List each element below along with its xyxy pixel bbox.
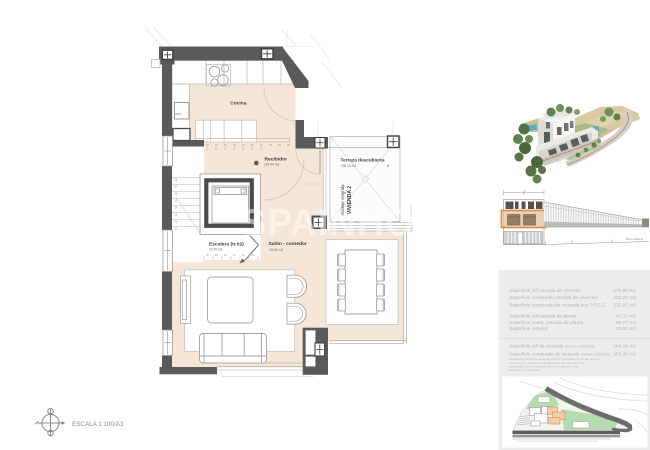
- svg-text:26.80 m2: 26.80 m2: [270, 248, 284, 252]
- svg-text:Superficie útil cerrada de pla: Superficie útil cerrada de planta: [509, 314, 577, 320]
- svg-text:232,23 m2: 232,23 m2: [613, 295, 636, 301]
- svg-text:232,25 m2: 232,25 m2: [613, 302, 636, 308]
- svg-text:(93.94 m2: (93.94 m2: [265, 163, 280, 167]
- svg-text:Cocina: Cocina: [230, 100, 247, 106]
- svg-text:Muro existente: Muro existente: [626, 237, 644, 241]
- svg-text:Acceso vivienda: Acceso vivienda: [340, 184, 345, 216]
- svg-text:(98.15 m2: (98.15 m2: [342, 164, 357, 168]
- svg-text:60,77 m2: 60,77 m2: [616, 320, 636, 326]
- svg-text:Superficie útil cerrada de viv: Superficie útil cerrada de vivienda: [509, 288, 581, 294]
- svg-text:VIVIENDA 2: VIVIENDA 2: [347, 186, 353, 214]
- svg-text:Superficie construido de vivie: Superficie construido de vivienda con P.…: [509, 302, 607, 308]
- svg-text:170,60 m2: 170,60 m2: [613, 288, 636, 294]
- svg-text:Terraza descubierta: Terraza descubierta: [341, 157, 385, 162]
- svg-text:SPAINHOMES: SPAINHOMES: [241, 203, 499, 245]
- svg-text:255,45 m2: 255,45 m2: [613, 351, 636, 357]
- svg-text:viviendas en Andalucía: viviendas en Andalucía: [509, 368, 541, 372]
- svg-text:33,81 m2: 33,81 m2: [616, 326, 636, 332]
- svg-text:(9.76 m2: (9.76 m2: [210, 248, 223, 252]
- svg-text:Escalera (tr.02): Escalera (tr.02): [209, 241, 244, 247]
- svg-text:47,37 m2: 47,37 m2: [616, 314, 636, 320]
- svg-text:Superficie construido cerrada: Superficie construido cerrada de viviend…: [509, 295, 597, 301]
- svg-text:Superficie exterior: Superficie exterior: [509, 326, 548, 332]
- svg-text:194,26 m2: 194,26 m2: [613, 344, 636, 350]
- svg-text:Superficie const. cerrada de p: Superficie const. cerrada de planta: [509, 320, 583, 326]
- svg-text:Salón - comedor: Salón - comedor: [269, 241, 307, 247]
- svg-text:ESCALA 1:100/A3: ESCALA 1:100/A3: [72, 421, 124, 428]
